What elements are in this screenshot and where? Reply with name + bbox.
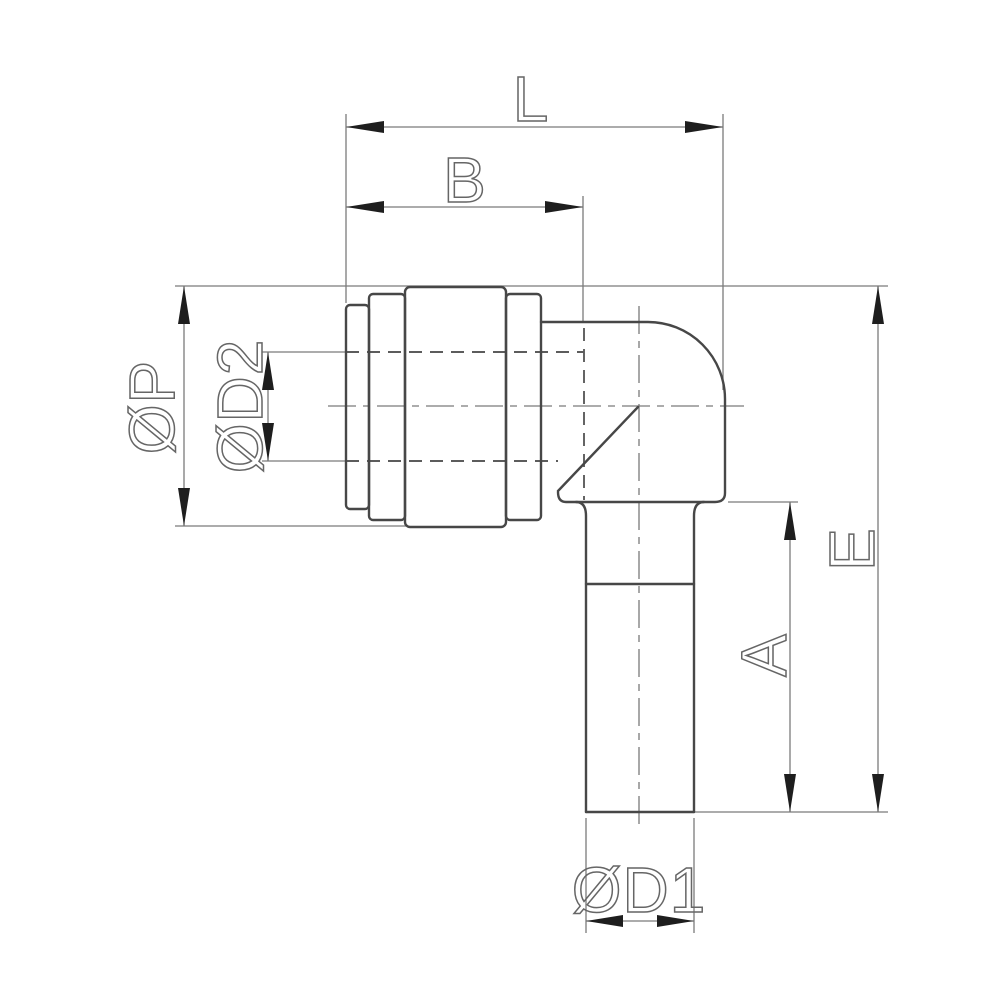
- label-A: A: [728, 633, 800, 677]
- arrow-B-left: [346, 201, 384, 213]
- body-right-ring: [506, 294, 541, 520]
- arrow-A-down: [784, 774, 796, 812]
- body-center-section: [405, 287, 506, 527]
- arrow-E-up: [872, 286, 884, 324]
- label-L: L: [513, 63, 550, 135]
- arrow-L-right: [685, 121, 723, 133]
- collet-release-ring: [346, 305, 369, 509]
- part-outline: [346, 287, 725, 812]
- elbow-fitting-technical-drawing: L B ØP ØD2 E A ØD1: [0, 0, 1000, 1000]
- label-P: ØP: [116, 360, 188, 454]
- hidden-bore-lines: [346, 328, 584, 500]
- dimension-labels: L B ØP ØD2 E A ØD1: [116, 63, 888, 926]
- arrow-P-down: [178, 488, 190, 526]
- arrow-A-up: [784, 502, 796, 540]
- drawing-canvas: L B ØP ØD2 E A ØD1: [0, 0, 1000, 1000]
- stem-left-edge: [576, 502, 586, 812]
- dimension-lines: [175, 114, 888, 933]
- arrow-P-up: [178, 286, 190, 324]
- arrow-L-left: [346, 121, 384, 133]
- label-D1: ØD1: [572, 854, 707, 926]
- collet-ring: [369, 294, 405, 520]
- label-B: B: [443, 144, 487, 216]
- centerlines: [328, 306, 744, 827]
- arrowheads: [178, 121, 884, 927]
- elbow-chamfer-edge: [558, 407, 638, 491]
- arrow-B-right: [545, 201, 583, 213]
- label-E: E: [816, 527, 888, 571]
- label-D2: ØD2: [204, 339, 276, 474]
- arrow-E-down: [872, 774, 884, 812]
- stem-right-edge: [694, 502, 704, 812]
